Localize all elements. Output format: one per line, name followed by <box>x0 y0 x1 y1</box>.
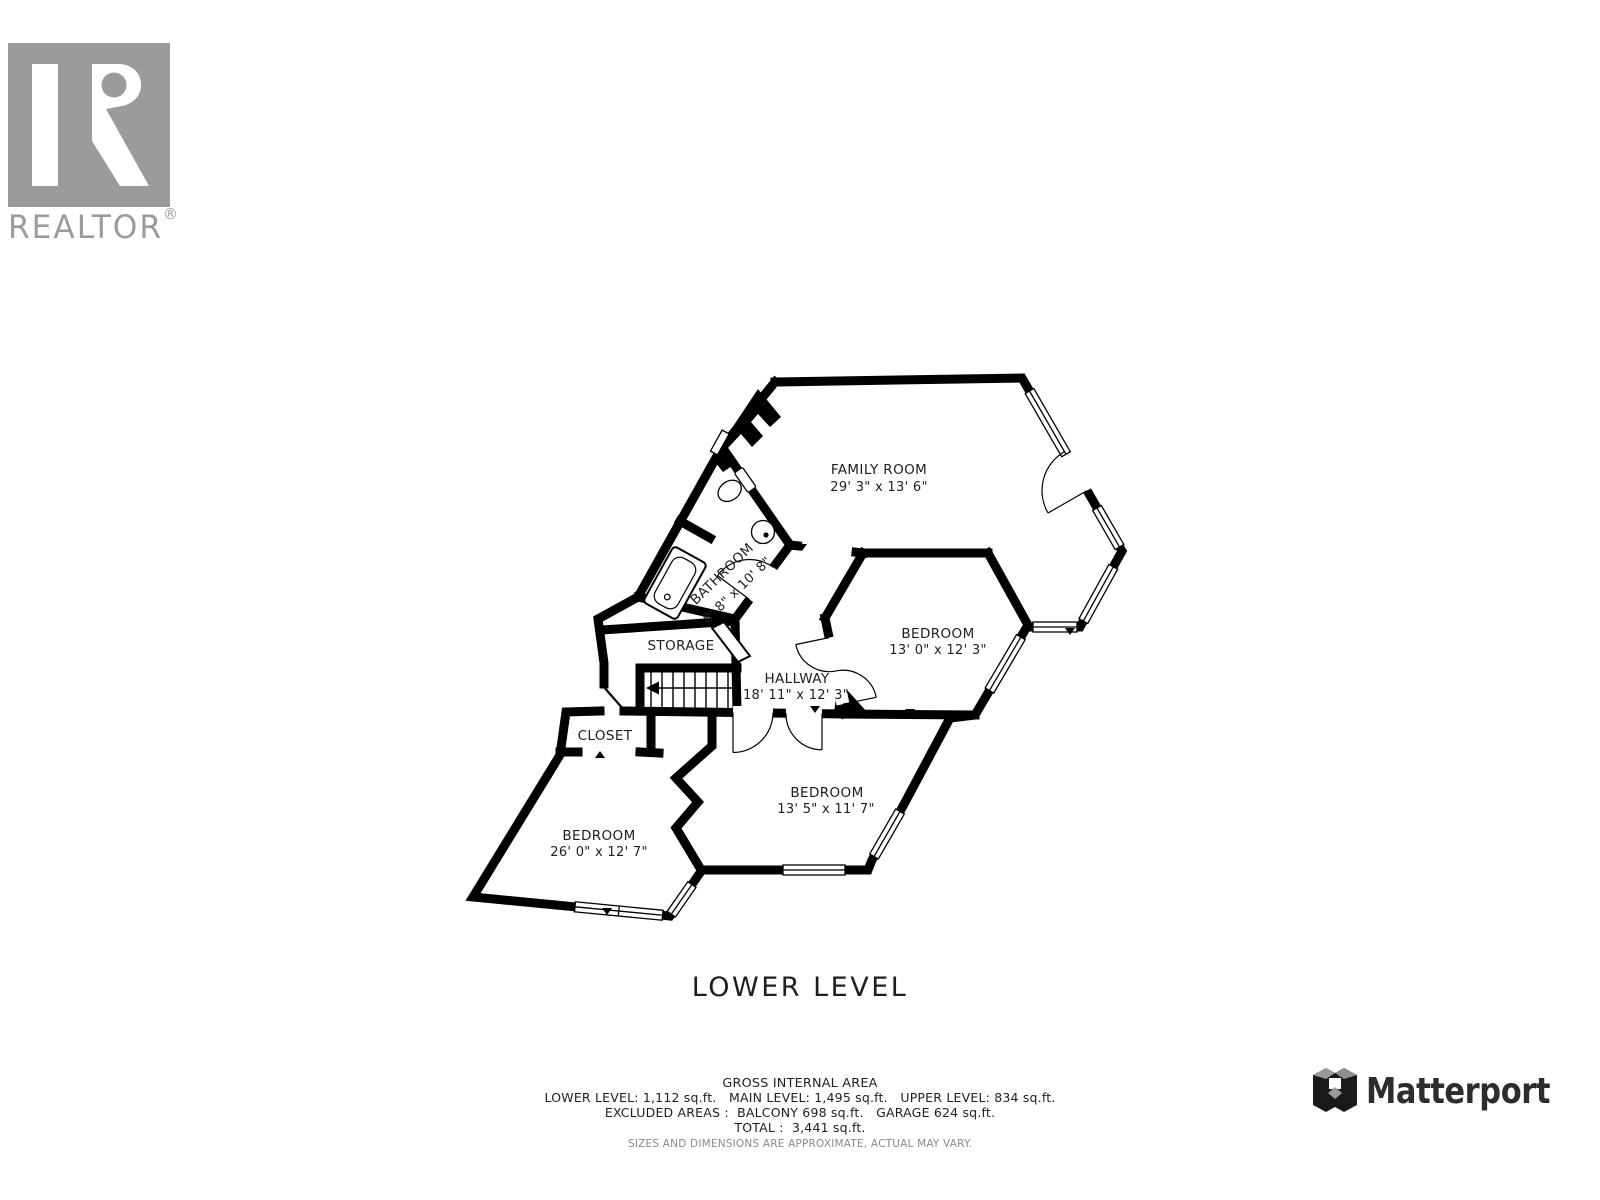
area-summary-heading: GROSS INTERNAL AREA <box>722 1076 877 1091</box>
window <box>783 865 845 875</box>
realtor-registered-mark: ® <box>163 205 178 223</box>
window <box>1079 564 1118 623</box>
window <box>870 809 905 859</box>
area-summary-total: TOTAL : 3,441 sq.ft. <box>733 1120 865 1135</box>
staircase <box>646 668 733 708</box>
window <box>575 902 664 920</box>
floor-plan-canvas: REALTOR ® <box>0 0 1600 1200</box>
area-summary: GROSS INTERNAL AREA LOWER LEVEL: 1,112 s… <box>545 1076 1056 1150</box>
bedroom-ne-dims: 13' 0" x 12' 3" <box>889 643 986 658</box>
hallway-dims: 18' 11" x 12' 3" <box>743 688 849 703</box>
bedroom-mid-label: BEDROOM <box>790 785 863 801</box>
window <box>667 882 696 917</box>
window <box>1093 506 1124 550</box>
storage-label: STORAGE <box>647 638 714 654</box>
family-room-dims: 29' 3" x 13' 6" <box>830 480 927 495</box>
realtor-logo: REALTOR ® <box>8 43 178 246</box>
closet-label: CLOSET <box>578 728 633 744</box>
stair-arrow-icon <box>646 682 659 695</box>
hallway-label: HALLWAY <box>764 671 829 687</box>
matterport-logo-text: Matterport <box>1366 1071 1550 1112</box>
matterport-logo: Matterport <box>1313 1068 1550 1112</box>
area-summary-disclaimer: SIZES AND DIMENSIONS ARE APPROXIMATE, AC… <box>628 1138 972 1150</box>
area-summary-excluded: EXCLUDED AREAS : BALCONY 698 sq.ft. GARA… <box>605 1105 995 1120</box>
floor-title: LOWER LEVEL <box>692 972 909 1003</box>
bedroom-sw-label: BEDROOM <box>562 828 635 844</box>
entry-door-leaf <box>603 686 624 710</box>
window <box>1025 389 1070 457</box>
bedroom-ne-label: BEDROOM <box>901 626 974 642</box>
floor-plan: FAMILY ROOM 29' 3" x 13' 6" BATHROOM 8' … <box>473 378 1124 920</box>
floor-plan-page: REALTOR ® <box>0 0 1600 1200</box>
toilet-icon <box>713 467 757 508</box>
sink-icon <box>752 521 775 544</box>
bedroom-mid-dims: 13' 5" x 11' 7" <box>777 802 874 817</box>
bedroom-sw-dims: 26' 0" x 12' 7" <box>550 845 647 860</box>
matterport-icon <box>1313 1068 1357 1112</box>
tick-icon <box>595 751 605 758</box>
area-summary-levels: LOWER LEVEL: 1,112 sq.ft. MAIN LEVEL: 1,… <box>545 1090 1056 1105</box>
realtor-logo-text: REALTOR <box>8 208 163 246</box>
window <box>985 635 1025 693</box>
family-room-label: FAMILY ROOM <box>831 462 927 478</box>
